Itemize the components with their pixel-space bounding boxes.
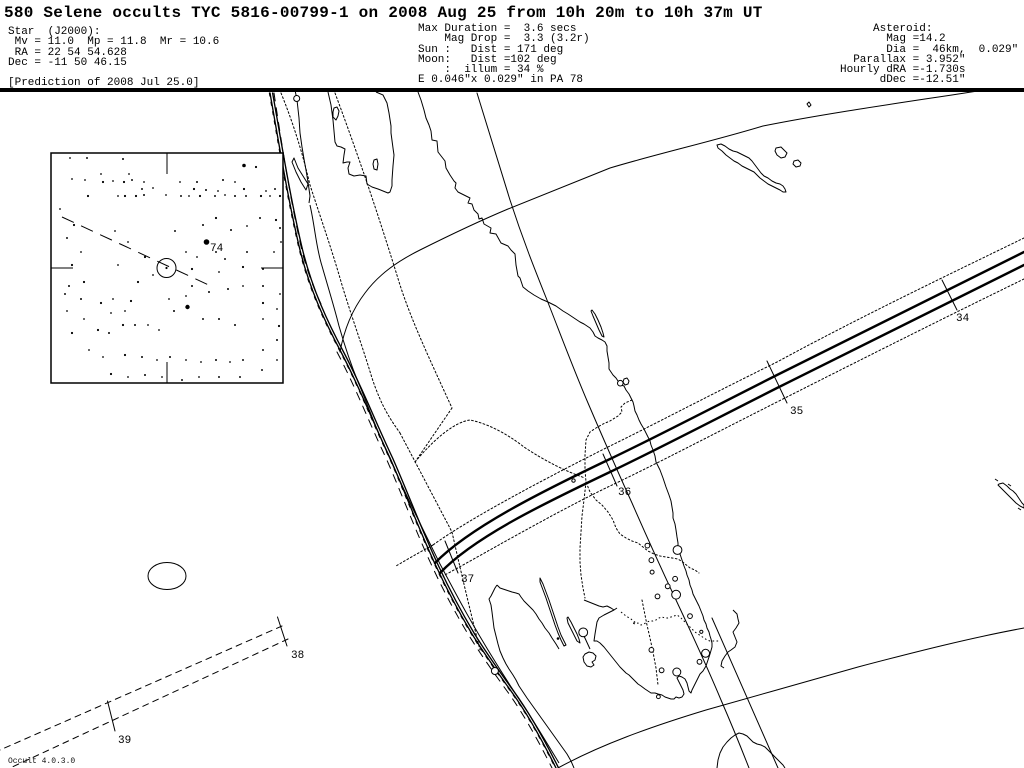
svg-text:36: 36 [618, 487, 631, 499]
svg-text:37: 37 [461, 574, 474, 586]
svg-text:39: 39 [118, 735, 131, 747]
svg-text:34: 34 [956, 313, 970, 325]
svg-text:38: 38 [291, 650, 304, 662]
svg-text:74: 74 [210, 243, 224, 255]
svg-text:35: 35 [790, 406, 803, 418]
